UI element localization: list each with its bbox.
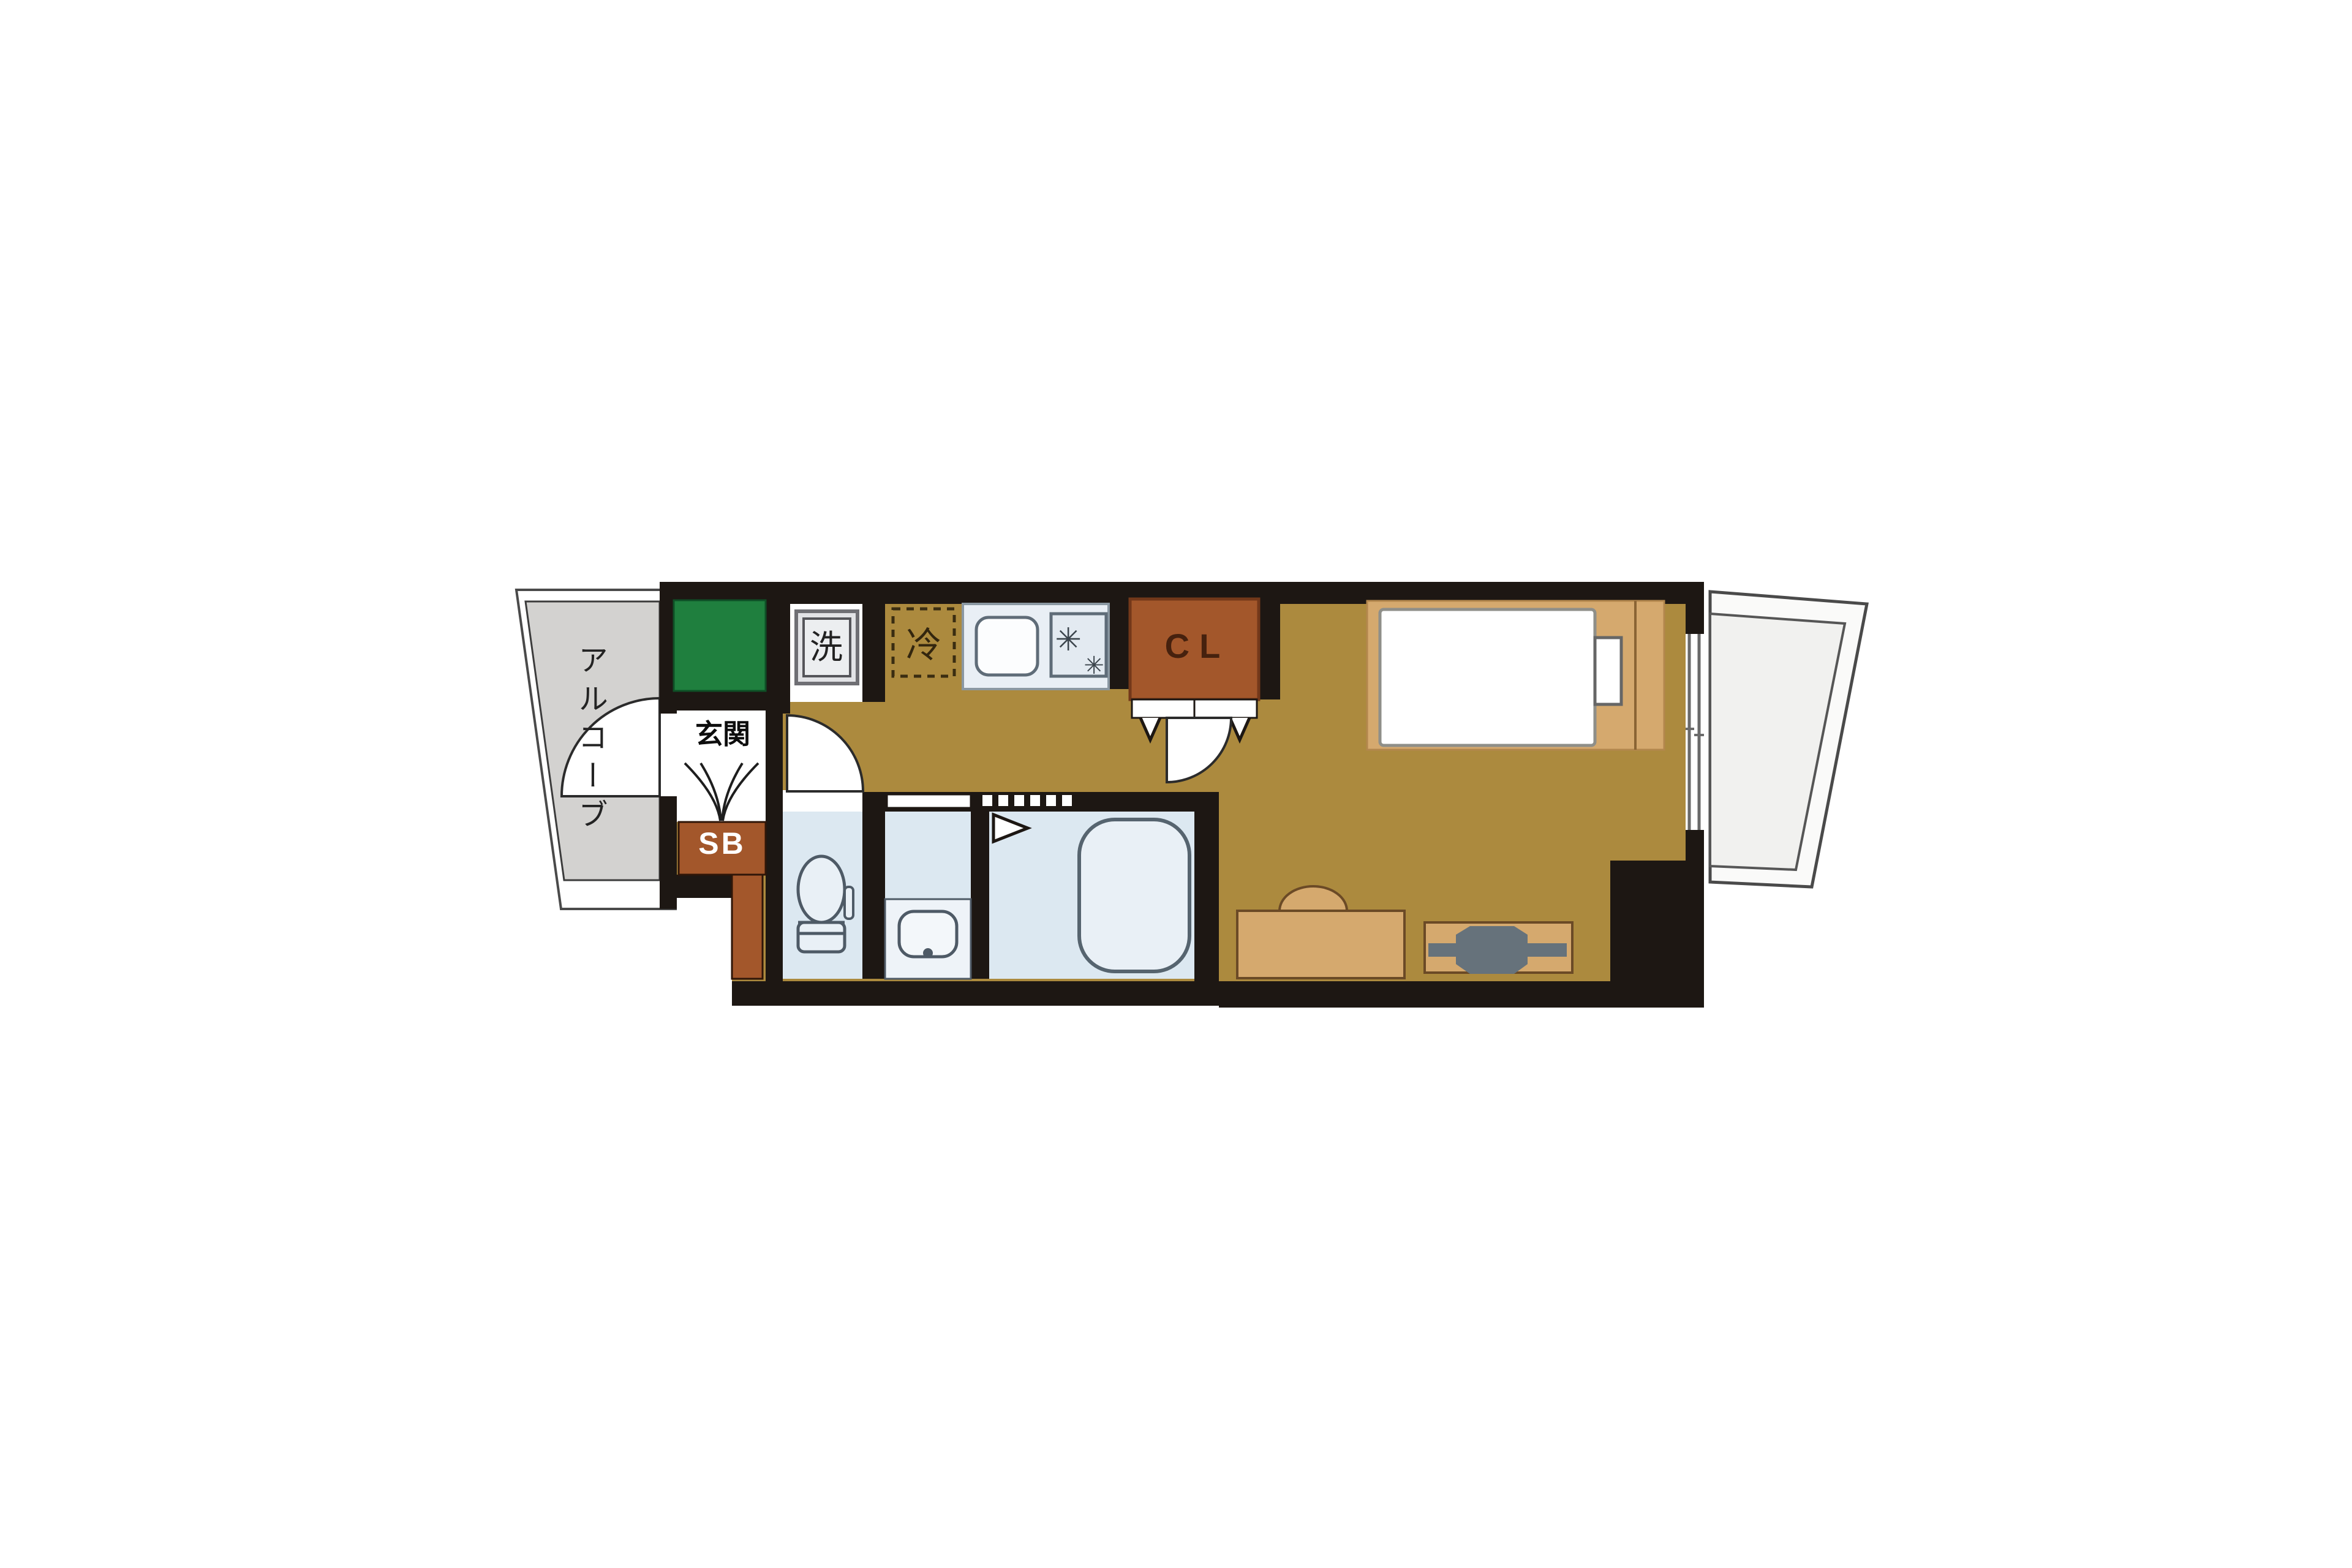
wall-right-lower xyxy=(1686,830,1704,885)
wall-counter-right xyxy=(1109,604,1130,689)
wall-right-upper xyxy=(1686,582,1704,634)
wall-washer-right xyxy=(862,582,885,702)
refrigerator-label: 冷 xyxy=(893,626,954,665)
wall-bath-right xyxy=(1194,792,1219,1006)
bathtub-icon xyxy=(1079,820,1189,971)
floor-plan-drawing: ✳ ✳ xyxy=(0,0,2352,1568)
entrance-label: 玄関 xyxy=(677,719,769,750)
shoe-box-label: SB xyxy=(679,827,766,861)
vanity-sink-icon xyxy=(885,899,971,979)
window-icon xyxy=(1686,634,1704,830)
washing-machine-label: 洗 xyxy=(793,630,860,666)
bed-icon xyxy=(1367,601,1664,750)
bed-mattress xyxy=(1380,609,1595,745)
wall-bathroom-bottom xyxy=(732,981,1219,1006)
bed-pillow xyxy=(1595,638,1621,704)
closet-label: CL xyxy=(1130,627,1265,665)
wall-toilet-left xyxy=(766,710,783,1006)
desk-icon xyxy=(1237,911,1404,978)
alcove-label: アルコーブ xyxy=(573,644,606,837)
tv-icon xyxy=(1456,926,1528,974)
wall-under-shoebox xyxy=(660,875,732,898)
wall-toilet-washroom xyxy=(862,812,885,979)
stove-burner-icon: ✳ xyxy=(1084,652,1104,680)
wall-washroom-bath xyxy=(971,812,989,979)
floor-plan-page: ✳ ✳ xyxy=(0,0,2352,1568)
green-service-area xyxy=(674,600,766,691)
shoe-box-column xyxy=(732,875,763,979)
toilet-doorway xyxy=(783,790,862,813)
sliding-door-icon xyxy=(887,794,971,808)
stove-burner-icon: ✳ xyxy=(1055,622,1082,658)
kitchen-sink-icon xyxy=(976,617,1038,675)
